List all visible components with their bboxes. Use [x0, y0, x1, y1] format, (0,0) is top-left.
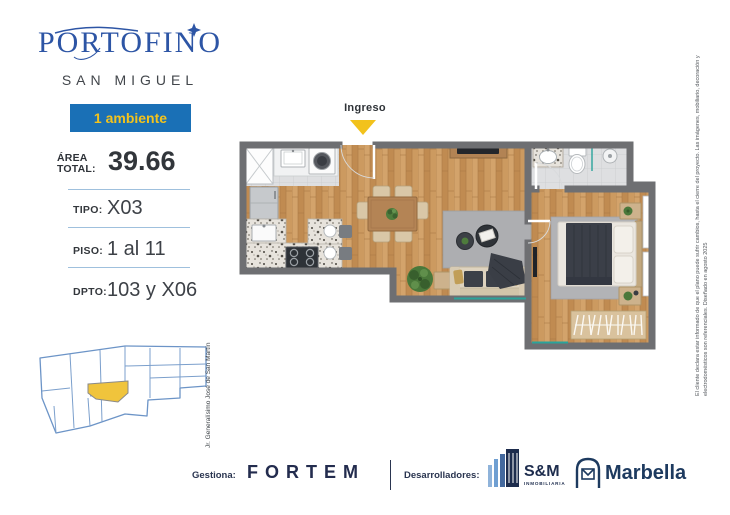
fortem-logo: FORTEM — [247, 462, 365, 483]
bed — [558, 221, 642, 287]
fridge — [250, 187, 278, 219]
utility-closet — [246, 148, 273, 184]
desarrolladores-label: Desarrolladores: — [404, 470, 480, 481]
toilet — [569, 148, 586, 174]
footer-divider — [390, 460, 391, 490]
divider — [68, 227, 190, 228]
marbella-arch-icon — [574, 456, 602, 490]
area-total-value: 39.66 — [108, 146, 176, 177]
marbella-logo-text: Marbella — [605, 462, 686, 485]
side-table — [434, 272, 451, 289]
stove — [286, 247, 318, 268]
tipo-label: TIPO: — [73, 204, 103, 216]
divider — [68, 267, 190, 268]
floorplan-drawing — [238, 141, 664, 353]
sm-logo-subtext: INMOBILIARIA — [524, 481, 566, 486]
laundry-counter — [274, 147, 338, 176]
entry-label: Ingreso — [330, 102, 400, 114]
site-plan-map — [30, 336, 210, 440]
piso-value: 1 al 11 — [107, 238, 166, 261]
sparkle-icon — [187, 23, 201, 37]
tipo-value: X03 — [107, 197, 143, 220]
brand-flourish-icon — [30, 20, 230, 70]
bedroom-tv — [533, 247, 537, 277]
shower-head — [603, 149, 617, 163]
street-label: Jr. Generalísimo José de San Martín — [205, 330, 212, 448]
brand-subtitle: SAN MIGUEL — [30, 72, 230, 88]
entry-arrow-icon — [350, 120, 376, 135]
area-total-label: ÁREA TOTAL: — [57, 153, 105, 175]
divider — [68, 189, 190, 190]
dpto-label: DPTO: — [73, 286, 107, 298]
disclaimer-text: El cliente declara estar informado de qu… — [694, 18, 710, 396]
unit-type-badge: 1 ambiente — [70, 104, 191, 132]
sm-logo-text: S&M — [524, 463, 560, 481]
sm-building-icon — [487, 449, 523, 493]
closet — [571, 311, 646, 339]
floor-plant — [407, 266, 433, 292]
flyer-page: PORTOFINO SAN MIGUEL 1 ambiente ÁREA TOT… — [0, 0, 730, 515]
piso-label: PISO: — [73, 245, 103, 257]
bathroom-vanity — [533, 148, 563, 167]
dpto-value: 103 y X06 — [107, 279, 197, 302]
gestiona-label: Gestiona: — [192, 470, 236, 481]
